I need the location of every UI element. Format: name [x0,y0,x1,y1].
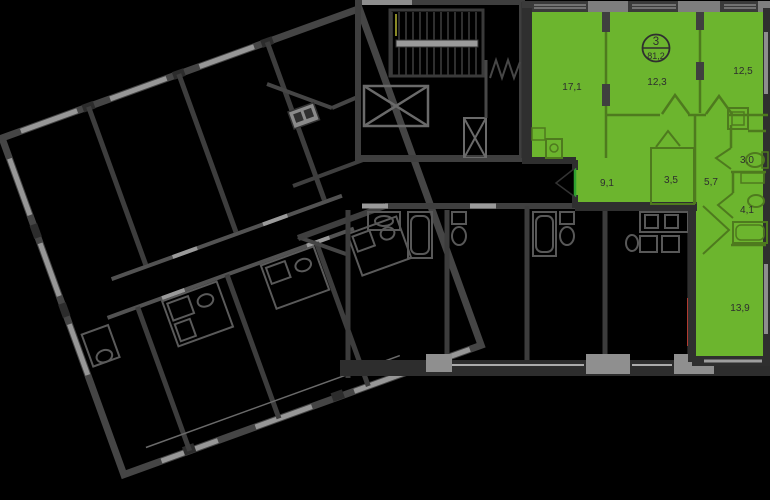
apartment-3-rooms-81-2[interactable]: 17,1 12,3 12,5 9,1 3,5 5,7 3,0 4,1 13,9 … [522,1,770,366]
bath-4-1-label: 4,1 [740,205,754,216]
room-12-5-label: 12,5 [733,66,753,77]
shaft-2 [464,118,486,158]
closet-3-5-label: 3,5 [664,175,678,186]
room-13-9-label: 13,9 [730,303,750,314]
floor-plan-svg: 17,1 12,3 12,5 9,1 3,5 5,7 3,0 4,1 13,9 … [0,0,770,500]
bath-3-0-label: 3,0 [740,155,754,166]
floor-plan-canvas: 17,1 12,3 12,5 9,1 3,5 5,7 3,0 4,1 13,9 … [0,0,770,500]
room-17-1-label: 17,1 [562,82,582,93]
entry-door[interactable] [556,168,575,197]
apartment-badge[interactable]: 3 81,2 [643,35,670,62]
badge-rooms-count: 3 [653,36,659,48]
badge-total-area: 81,2 [647,51,665,61]
hall-5-7-label: 5,7 [704,177,718,188]
vestibule-door-zigzag [490,60,520,78]
hall-9-1-label: 9,1 [600,178,614,189]
room-12-3-label: 12,3 [647,77,667,88]
